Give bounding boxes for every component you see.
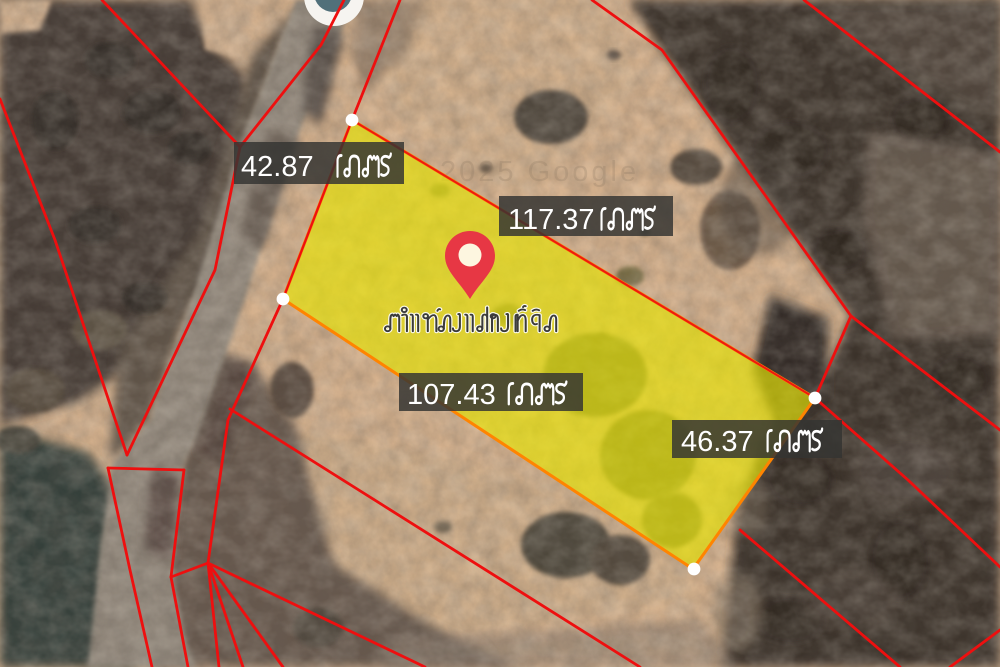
svg-text:2025 Google: 2025 Google [440, 156, 639, 188]
svg-text:117.37: 117.37 [508, 204, 595, 236]
svg-text:46.37: 46.37 [681, 426, 754, 458]
svg-text:107.43: 107.43 [407, 379, 496, 411]
svg-text:42.87: 42.87 [241, 151, 314, 183]
